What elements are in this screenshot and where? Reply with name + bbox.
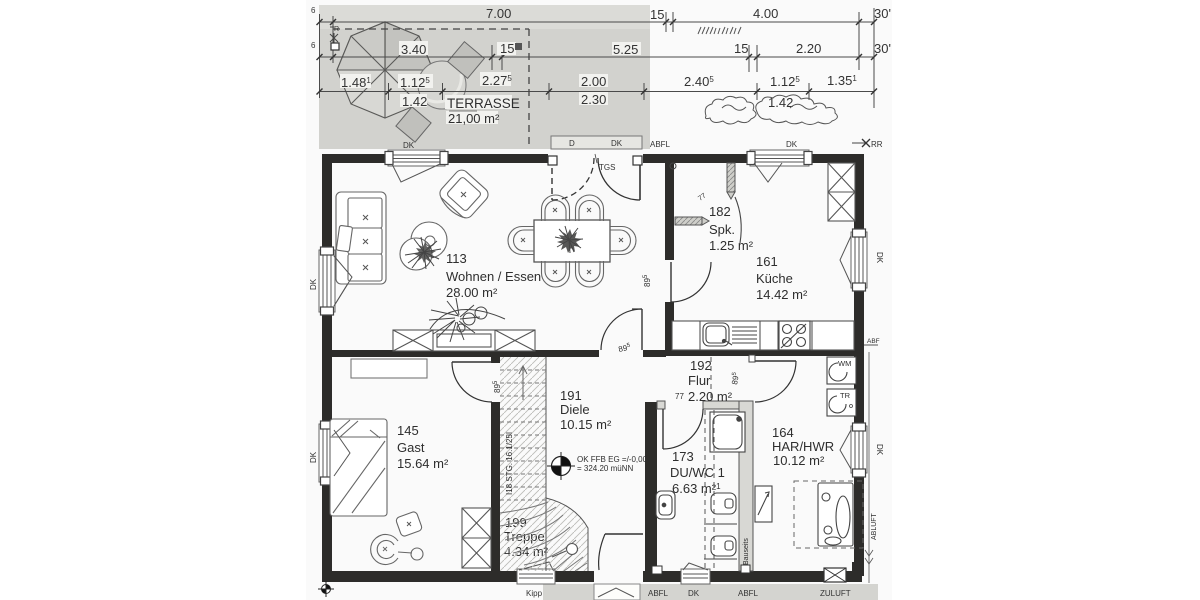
svg-text:Flur: Flur	[688, 373, 711, 388]
svg-text:15: 15	[500, 41, 514, 56]
svg-text:ABFL: ABFL	[650, 140, 671, 149]
svg-text:DK: DK	[309, 278, 318, 290]
svg-text:182: 182	[709, 204, 731, 219]
svg-text:21,00 m²: 21,00 m²	[448, 111, 500, 126]
svg-text:3.40: 3.40	[401, 42, 426, 57]
svg-text:DK: DK	[786, 140, 798, 149]
svg-text:7.00: 7.00	[486, 6, 511, 21]
svg-text:6: 6	[311, 6, 316, 15]
svg-text:Kipp: Kipp	[526, 589, 543, 598]
svg-text:ZULUFT: ZULUFT	[820, 589, 851, 598]
svg-text:10.15 m²: 10.15 m²	[560, 417, 612, 432]
svg-text:145: 145	[397, 423, 419, 438]
svg-text:TERRASSE: TERRASSE	[447, 96, 520, 111]
svg-text:4.00: 4.00	[753, 6, 778, 21]
svg-text:DK: DK	[309, 451, 318, 463]
svg-text:TGS: TGS	[599, 163, 615, 172]
svg-text:Diele: Diele	[560, 402, 590, 417]
svg-text:Küche: Küche	[756, 271, 793, 286]
svg-text:DK: DK	[688, 589, 700, 598]
svg-text:77: 77	[675, 392, 684, 401]
svg-text:28.00 m²: 28.00 m²	[446, 285, 498, 300]
svg-text:1.42: 1.42	[402, 94, 427, 109]
svg-text:ABLUFT: ABLUFT	[871, 512, 878, 540]
svg-text:161: 161	[756, 254, 778, 269]
svg-text:2.20: 2.20	[796, 41, 821, 56]
svg-text:DK: DK	[875, 444, 884, 456]
svg-text:30': 30'	[874, 6, 891, 21]
svg-text:ABF: ABF	[867, 338, 880, 345]
svg-text:Gast: Gast	[397, 440, 425, 455]
svg-text:WM: WM	[838, 359, 851, 368]
svg-text:192: 192	[690, 358, 712, 373]
svg-text:5.25: 5.25	[613, 42, 638, 57]
svg-text:1.25 m²: 1.25 m²	[709, 238, 754, 253]
svg-text:DU/WC 1: DU/WC 1	[670, 465, 725, 480]
svg-text:DK: DK	[403, 141, 415, 150]
svg-text:15: 15	[734, 41, 748, 56]
svg-text:ABFL: ABFL	[648, 589, 669, 598]
svg-text:ABFL: ABFL	[738, 589, 759, 598]
svg-text:2.30: 2.30	[581, 92, 606, 107]
svg-text:HAR/HWR: HAR/HWR	[772, 439, 834, 454]
svg-text:30': 30'	[874, 41, 891, 56]
svg-text:Wohnen / Essen: Wohnen / Essen	[446, 269, 541, 284]
svg-text:113: 113	[446, 251, 467, 266]
svg-text:OK FFB EG =/-0,00: OK FFB EG =/-0,00	[577, 455, 648, 464]
svg-text:15.64 m²: 15.64 m²	[397, 456, 449, 471]
svg-text:RR: RR	[871, 140, 883, 149]
svg-text:2.20 m²: 2.20 m²	[688, 389, 733, 404]
svg-text:164: 164	[772, 425, 794, 440]
svg-text:Spk.: Spk.	[709, 222, 735, 237]
svg-text:R: R	[334, 26, 339, 33]
svg-text:Bauseits: Bauseits	[743, 538, 750, 565]
svg-text:DK: DK	[611, 139, 623, 148]
svg-text:6: 6	[311, 41, 316, 50]
svg-text:DK: DK	[875, 252, 884, 264]
svg-text:D: D	[569, 139, 575, 148]
svg-text:= 324.20 müNN: = 324.20 müNN	[577, 464, 633, 473]
svg-text:I18 STG. 16.1/25I: I18 STG. 16.1/25I	[505, 432, 514, 495]
svg-text:10.12 m²: 10.12 m²	[773, 453, 825, 468]
svg-text:14.42 m²: 14.42 m²	[756, 287, 808, 302]
svg-text:191: 191	[560, 388, 582, 403]
svg-text:2.00: 2.00	[581, 74, 606, 89]
svg-text:TR: TR	[840, 391, 851, 400]
svg-text:15: 15	[650, 7, 664, 22]
svg-text:173: 173	[672, 449, 694, 464]
